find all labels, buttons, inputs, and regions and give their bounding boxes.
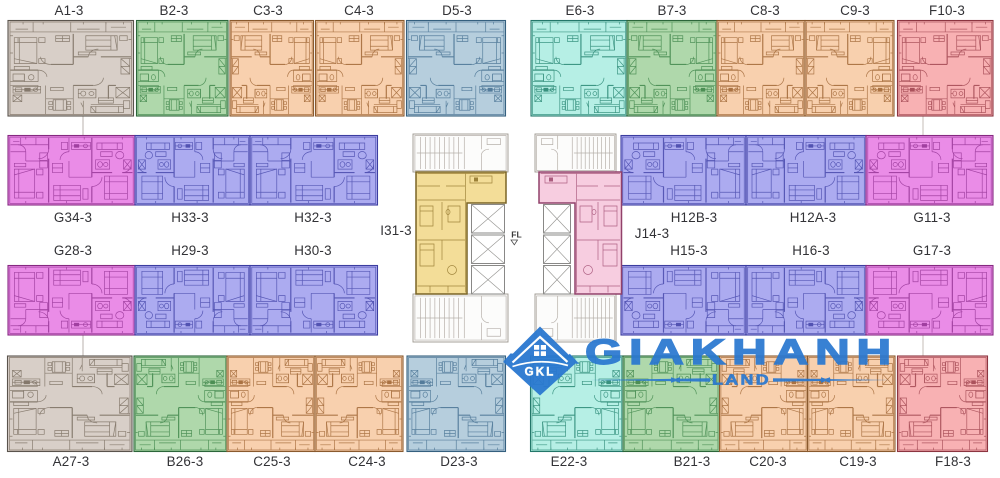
svg-text:G34-3: G34-3 (54, 210, 92, 225)
svg-text:C20-3: C20-3 (749, 454, 786, 469)
svg-text:A27-3: A27-3 (53, 454, 90, 469)
svg-text:C4-3: C4-3 (344, 3, 374, 18)
svg-text:H15-3: H15-3 (670, 243, 707, 258)
svg-text:H16-3: H16-3 (792, 243, 829, 258)
svg-text:H32-3: H32-3 (294, 210, 331, 225)
svg-text:C19-3: C19-3 (839, 454, 876, 469)
svg-text:G17-3: G17-3 (913, 243, 951, 258)
svg-text:J14-3: J14-3 (635, 226, 670, 241)
svg-text:A1-3: A1-3 (54, 3, 83, 18)
svg-text:F10-3: F10-3 (929, 3, 965, 18)
svg-text:D5-3: D5-3 (442, 3, 472, 18)
svg-text:H30-3: H30-3 (294, 243, 331, 258)
svg-text:H29-3: H29-3 (171, 243, 208, 258)
svg-text:E22-3: E22-3 (551, 454, 588, 469)
svg-text:H12B-3: H12B-3 (671, 210, 718, 225)
svg-text:B26-3: B26-3 (167, 454, 204, 469)
svg-text:G11-3: G11-3 (913, 210, 950, 225)
svg-text:I31-3: I31-3 (380, 223, 412, 238)
svg-text:E6-3: E6-3 (565, 3, 594, 18)
svg-text:H12A-3: H12A-3 (790, 210, 837, 225)
svg-text:FL: FL (511, 230, 521, 240)
svg-text:C3-3: C3-3 (253, 3, 283, 18)
svg-text:D23-3: D23-3 (440, 454, 477, 469)
svg-text:LAND: LAND (712, 372, 771, 389)
svg-text:B7-3: B7-3 (657, 3, 686, 18)
svg-text:B21-3: B21-3 (674, 454, 711, 469)
svg-text:B2-3: B2-3 (159, 3, 188, 18)
svg-text:GIAKHANH: GIAKHANH (585, 333, 898, 372)
svg-text:H33-3: H33-3 (171, 210, 208, 225)
svg-text:C24-3: C24-3 (348, 454, 385, 469)
svg-text:G28-3: G28-3 (54, 243, 92, 258)
svg-text:F18-3: F18-3 (935, 454, 971, 469)
svg-text:C9-3: C9-3 (840, 3, 870, 18)
svg-text:GKL: GKL (525, 367, 556, 379)
svg-text:C8-3: C8-3 (750, 3, 780, 18)
svg-text:C25-3: C25-3 (253, 454, 290, 469)
